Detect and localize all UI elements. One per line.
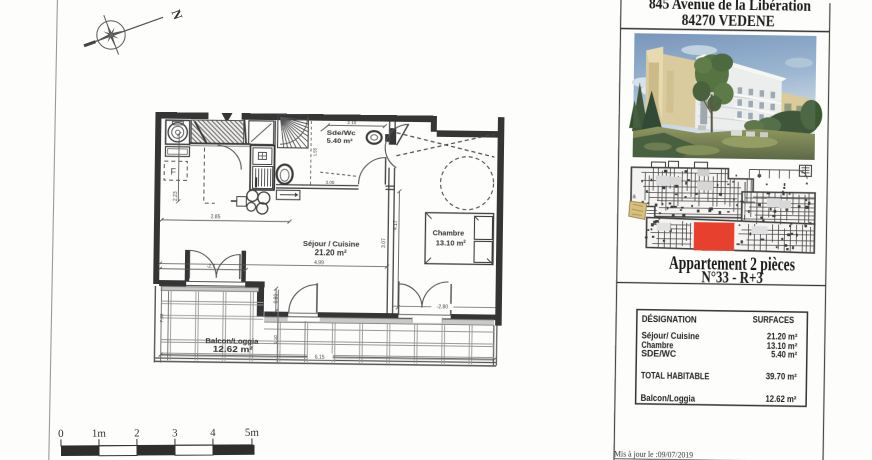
svg-text:-2.7: -2.7 — [207, 264, 216, 270]
svg-text:84270 VEDENE: 84270 VEDENE — [682, 12, 775, 30]
svg-text:1.10: 1.10 — [273, 335, 278, 344]
svg-text:3.05: 3.05 — [326, 180, 335, 185]
svg-text:2: 2 — [134, 428, 140, 440]
svg-text:Sde/Wc: Sde/Wc — [327, 130, 356, 137]
svg-text:N: N — [169, 7, 187, 22]
svg-text:N°33 - R+3: N°33 - R+3 — [701, 267, 763, 287]
svg-text:4.17: 4.17 — [393, 220, 399, 230]
svg-text:4: 4 — [210, 427, 216, 439]
svg-text:13.10 m²: 13.10 m² — [436, 238, 467, 247]
svg-text:5.40 m²: 5.40 m² — [771, 349, 797, 359]
svg-text:0.80: 0.80 — [273, 294, 279, 304]
svg-text:1m: 1m — [92, 428, 107, 440]
svg-text:1.55: 1.55 — [312, 147, 317, 156]
svg-text:3: 3 — [172, 427, 178, 439]
svg-text:F: F — [170, 167, 176, 177]
svg-text:Chambre: Chambre — [433, 228, 465, 237]
svg-text:2.23: 2.23 — [173, 191, 179, 201]
svg-text:Balcon/Loggia: Balcon/Loggia — [640, 393, 695, 404]
svg-text:39.70 m²: 39.70 m² — [766, 371, 797, 381]
svg-text:Séjour / Cuisine: Séjour / Cuisine — [303, 239, 360, 249]
svg-text:3.07: 3.07 — [381, 238, 387, 248]
svg-text:7.95: 7.95 — [159, 313, 164, 322]
svg-text:SURFACES: SURFACES — [753, 315, 795, 326]
svg-text:Mis à jour le :09/07/2019: Mis à jour le :09/07/2019 — [614, 449, 693, 459]
svg-text:12.62 m²: 12.62 m² — [765, 394, 796, 404]
svg-text:0: 0 — [58, 428, 64, 440]
svg-text:12.62 m²: 12.62 m² — [213, 345, 254, 355]
svg-text:-2.80: -2.80 — [437, 304, 449, 310]
svg-text:5m: 5m — [245, 427, 260, 439]
svg-text:SDE/WC: SDE/WC — [641, 348, 677, 359]
svg-text:DÉSIGNATION: DÉSIGNATION — [642, 314, 697, 326]
svg-text:2.15: 2.15 — [347, 120, 356, 125]
svg-text:5.40 m²: 5.40 m² — [327, 138, 354, 145]
svg-text:TOTAL HABITABLE: TOTAL HABITABLE — [641, 370, 710, 381]
svg-text:6.15: 6.15 — [315, 355, 325, 361]
svg-text:2.85: 2.85 — [211, 214, 221, 220]
svg-text:21.20 m²: 21.20 m² — [315, 248, 347, 257]
svg-text:4.99: 4.99 — [314, 260, 324, 266]
